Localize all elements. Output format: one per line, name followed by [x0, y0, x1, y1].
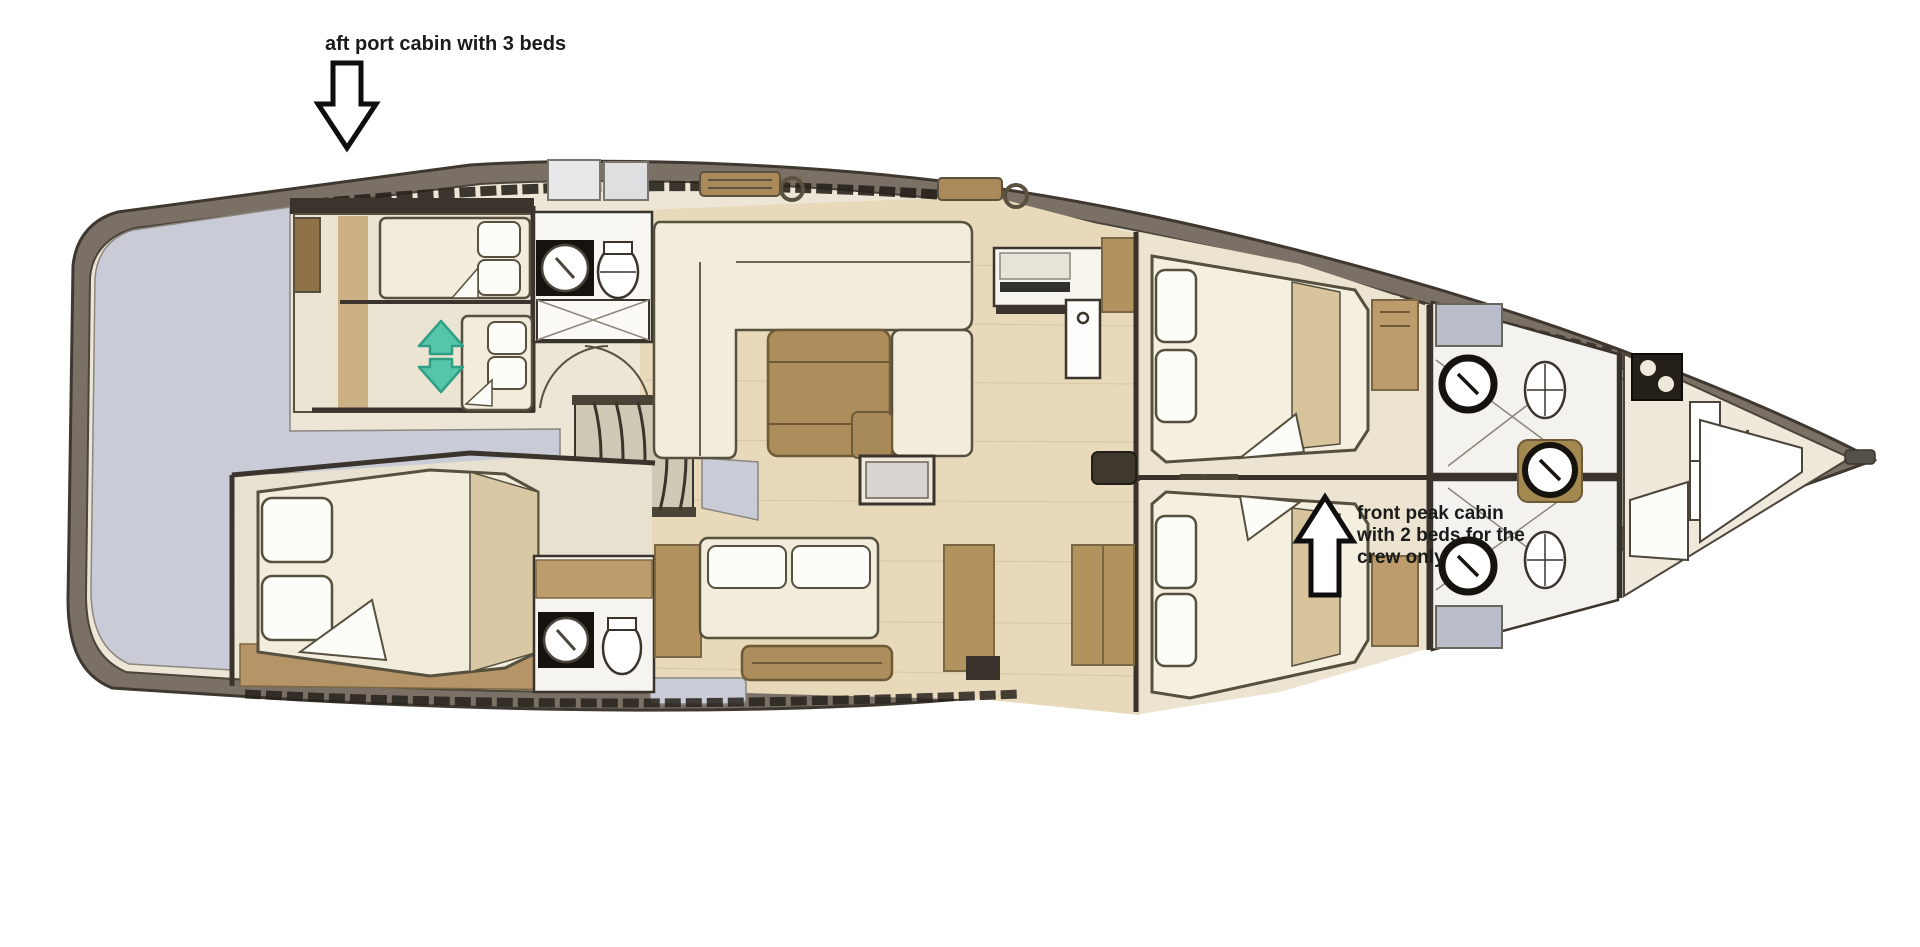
- windlass-icon: [1632, 354, 1682, 400]
- pillow: [1156, 516, 1196, 588]
- tv-unit: [966, 656, 1000, 680]
- pillow: [488, 357, 526, 389]
- tall-cabinet: [944, 545, 994, 671]
- bed-double-master: [258, 470, 538, 676]
- pillow: [478, 222, 520, 257]
- bed-single-lower: [462, 316, 532, 410]
- sofa-arm: [852, 412, 892, 458]
- floor-plan-svg: aft port cabin with 3 beds front peak ca…: [0, 0, 1920, 947]
- wardrobe: [294, 218, 320, 292]
- back-cushion: [708, 546, 786, 588]
- yacht-floor-plan-figure: aft port cabin with 3 beds front peak ca…: [0, 0, 1920, 947]
- deck-hatch: [700, 172, 780, 196]
- pillow: [262, 576, 332, 640]
- salon: [654, 222, 972, 458]
- aft-port-cabin: [290, 198, 534, 412]
- locker-gray: [1436, 304, 1502, 346]
- pillow: [488, 322, 526, 354]
- toilet-tank: [604, 242, 632, 254]
- cooktop: [1000, 282, 1070, 292]
- companionway-entry: [860, 456, 934, 504]
- pillow: [1156, 594, 1196, 666]
- shower-icon: [537, 300, 649, 340]
- wardrobe: [338, 216, 368, 410]
- forward-port-cabin: [1140, 232, 1430, 476]
- cockpit-locker: [604, 162, 648, 200]
- sofa: [700, 538, 878, 638]
- bed-single-upper: [380, 218, 530, 298]
- master-bathroom: [534, 556, 654, 692]
- locker-gray: [1436, 606, 1502, 648]
- cockpit-locker: [548, 160, 600, 200]
- toilet-tank: [608, 618, 636, 630]
- anchor-roller: [1845, 450, 1875, 464]
- fridge: [1102, 238, 1136, 312]
- wardrobe: [1372, 300, 1418, 390]
- cabin-wall: [290, 198, 534, 214]
- wardrobe: [1372, 556, 1418, 646]
- blanket: [1292, 282, 1340, 449]
- pillow: [1156, 350, 1196, 422]
- mast-step: [1092, 452, 1136, 484]
- pillow: [262, 498, 332, 562]
- annotation-aft-cabin-text: aft port cabin with 3 beds: [325, 33, 566, 55]
- galley-sink: [1066, 300, 1100, 378]
- chaise: [892, 330, 972, 456]
- annotation-crew-cabin-line2: with 2 beds for the: [1356, 525, 1525, 546]
- appliance: [1000, 253, 1070, 279]
- blanket: [470, 472, 538, 672]
- vanity-counter: [536, 560, 652, 598]
- annotation-crew-cabin-line3: crew only: [1357, 547, 1445, 568]
- annotation-aft-cabin: aft port cabin with 3 beds: [318, 33, 566, 148]
- down-arrow-icon: [318, 63, 376, 148]
- cabinet: [655, 545, 701, 657]
- back-cushion: [792, 546, 870, 588]
- pillow: [1156, 270, 1196, 342]
- bed-double: [1152, 256, 1368, 462]
- deck-hatch: [938, 178, 1002, 200]
- pillow: [478, 260, 520, 295]
- annotation-crew-cabin-line1: front peak cabin: [1357, 503, 1504, 524]
